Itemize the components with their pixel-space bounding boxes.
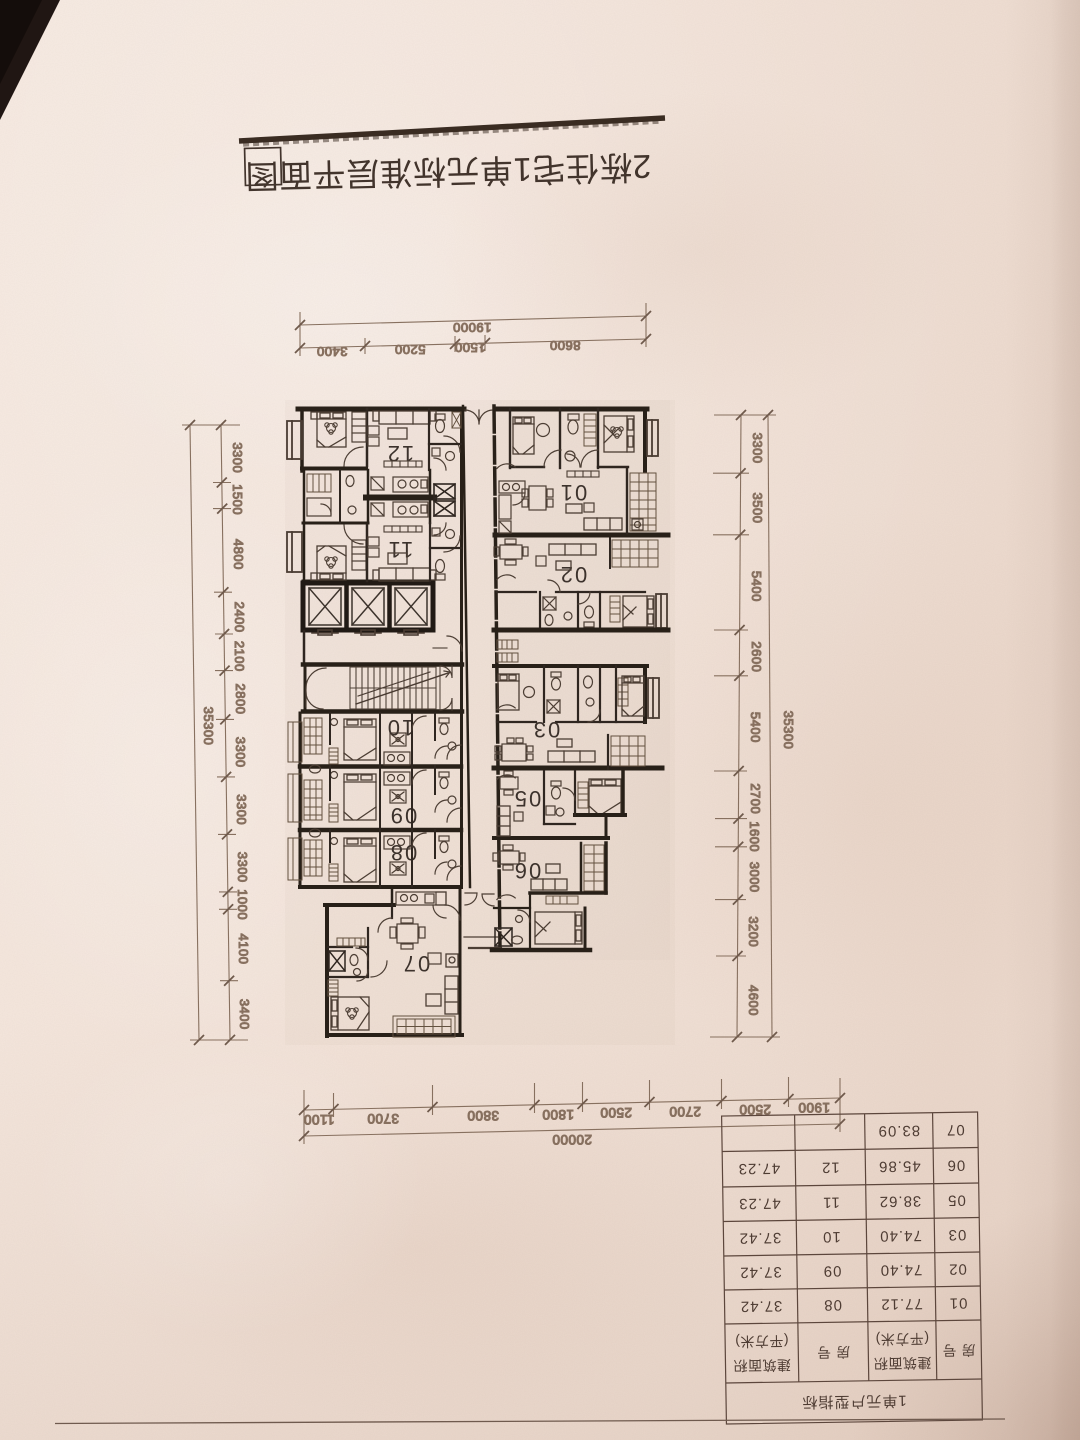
svg-text:11: 11 xyxy=(387,537,414,562)
svg-text:07: 07 xyxy=(402,951,430,976)
svg-text:(平方米): (平方米) xyxy=(735,1333,789,1350)
svg-text:3300: 3300 xyxy=(234,794,249,825)
svg-text:20000: 20000 xyxy=(552,1132,592,1147)
svg-text:1500: 1500 xyxy=(230,484,245,515)
svg-text:03: 03 xyxy=(532,717,560,742)
svg-text:37.42: 37.42 xyxy=(739,1263,782,1281)
svg-text:3800: 3800 xyxy=(467,1108,499,1123)
svg-text:建筑面积: 建筑面积 xyxy=(873,1355,931,1372)
svg-text:2500: 2500 xyxy=(600,1105,632,1120)
svg-text:房 号: 房 号 xyxy=(942,1342,976,1359)
svg-text:37.42: 37.42 xyxy=(739,1229,782,1247)
svg-text:02: 02 xyxy=(948,1260,967,1277)
svg-text:4600: 4600 xyxy=(746,985,761,1016)
svg-text:47.23: 47.23 xyxy=(738,1194,781,1212)
svg-text:03: 03 xyxy=(948,1226,967,1243)
svg-text:06: 06 xyxy=(946,1157,965,1174)
svg-text:5400: 5400 xyxy=(748,712,763,743)
svg-text:2400: 2400 xyxy=(232,602,247,633)
svg-text:1900: 1900 xyxy=(798,1100,830,1115)
svg-text:74.40: 74.40 xyxy=(880,1261,923,1279)
svg-text:4100: 4100 xyxy=(236,934,251,965)
svg-text:8600: 8600 xyxy=(550,338,581,353)
svg-text:3400: 3400 xyxy=(317,344,348,359)
svg-text:11: 11 xyxy=(822,1193,840,1210)
svg-text:1单元户型指标: 1单元户型指标 xyxy=(801,1392,907,1411)
svg-text:1500: 1500 xyxy=(455,340,486,355)
svg-text:3500: 3500 xyxy=(750,493,765,524)
svg-text:47.23: 47.23 xyxy=(738,1159,781,1177)
svg-text:2800: 2800 xyxy=(233,684,248,715)
svg-text:01: 01 xyxy=(949,1294,968,1311)
svg-text:05: 05 xyxy=(513,786,541,811)
svg-text:2100: 2100 xyxy=(232,641,247,672)
svg-text:1800: 1800 xyxy=(542,1107,574,1122)
svg-text:5200: 5200 xyxy=(395,342,426,357)
svg-text:3400: 3400 xyxy=(237,999,252,1030)
svg-text:4800: 4800 xyxy=(231,539,246,570)
svg-text:01: 01 xyxy=(559,480,587,505)
svg-text:2700: 2700 xyxy=(748,783,763,814)
svg-text:10: 10 xyxy=(386,715,414,740)
svg-text:19000: 19000 xyxy=(453,320,492,335)
svg-text:(平方米): (平方米) xyxy=(875,1331,929,1348)
svg-text:74.40: 74.40 xyxy=(879,1227,922,1245)
svg-text:35300: 35300 xyxy=(781,711,796,750)
svg-text:3300: 3300 xyxy=(233,737,248,768)
svg-text:77.12: 77.12 xyxy=(880,1295,923,1313)
svg-text:建筑面积: 建筑面积 xyxy=(733,1357,791,1374)
svg-text:1100: 1100 xyxy=(303,1112,334,1127)
svg-text:3300: 3300 xyxy=(235,852,250,883)
svg-text:5400: 5400 xyxy=(749,571,764,602)
svg-text:1000: 1000 xyxy=(235,889,250,920)
svg-text:3300: 3300 xyxy=(750,433,765,464)
svg-text:37.42: 37.42 xyxy=(740,1297,783,1315)
svg-text:83.09: 83.09 xyxy=(877,1122,920,1140)
svg-text:2600: 2600 xyxy=(749,641,764,672)
svg-text:08: 08 xyxy=(823,1296,842,1313)
svg-text:12: 12 xyxy=(821,1158,840,1175)
svg-text:07: 07 xyxy=(946,1121,965,1138)
svg-text:05: 05 xyxy=(947,1192,966,1209)
svg-text:35300: 35300 xyxy=(201,707,216,746)
svg-text:1600: 1600 xyxy=(747,821,762,852)
svg-text:3300: 3300 xyxy=(230,442,245,473)
svg-text:45.86: 45.86 xyxy=(878,1157,921,1175)
svg-text:3200: 3200 xyxy=(746,916,761,947)
svg-text:02: 02 xyxy=(559,562,587,587)
svg-text:38.62: 38.62 xyxy=(879,1192,922,1210)
svg-text:3700: 3700 xyxy=(367,1111,399,1126)
svg-text:2700: 2700 xyxy=(669,1104,701,1119)
svg-text:10: 10 xyxy=(822,1228,841,1245)
svg-text:09: 09 xyxy=(823,1262,842,1279)
svg-text:3000: 3000 xyxy=(747,862,762,893)
svg-text:房 号: 房 号 xyxy=(817,1344,851,1361)
